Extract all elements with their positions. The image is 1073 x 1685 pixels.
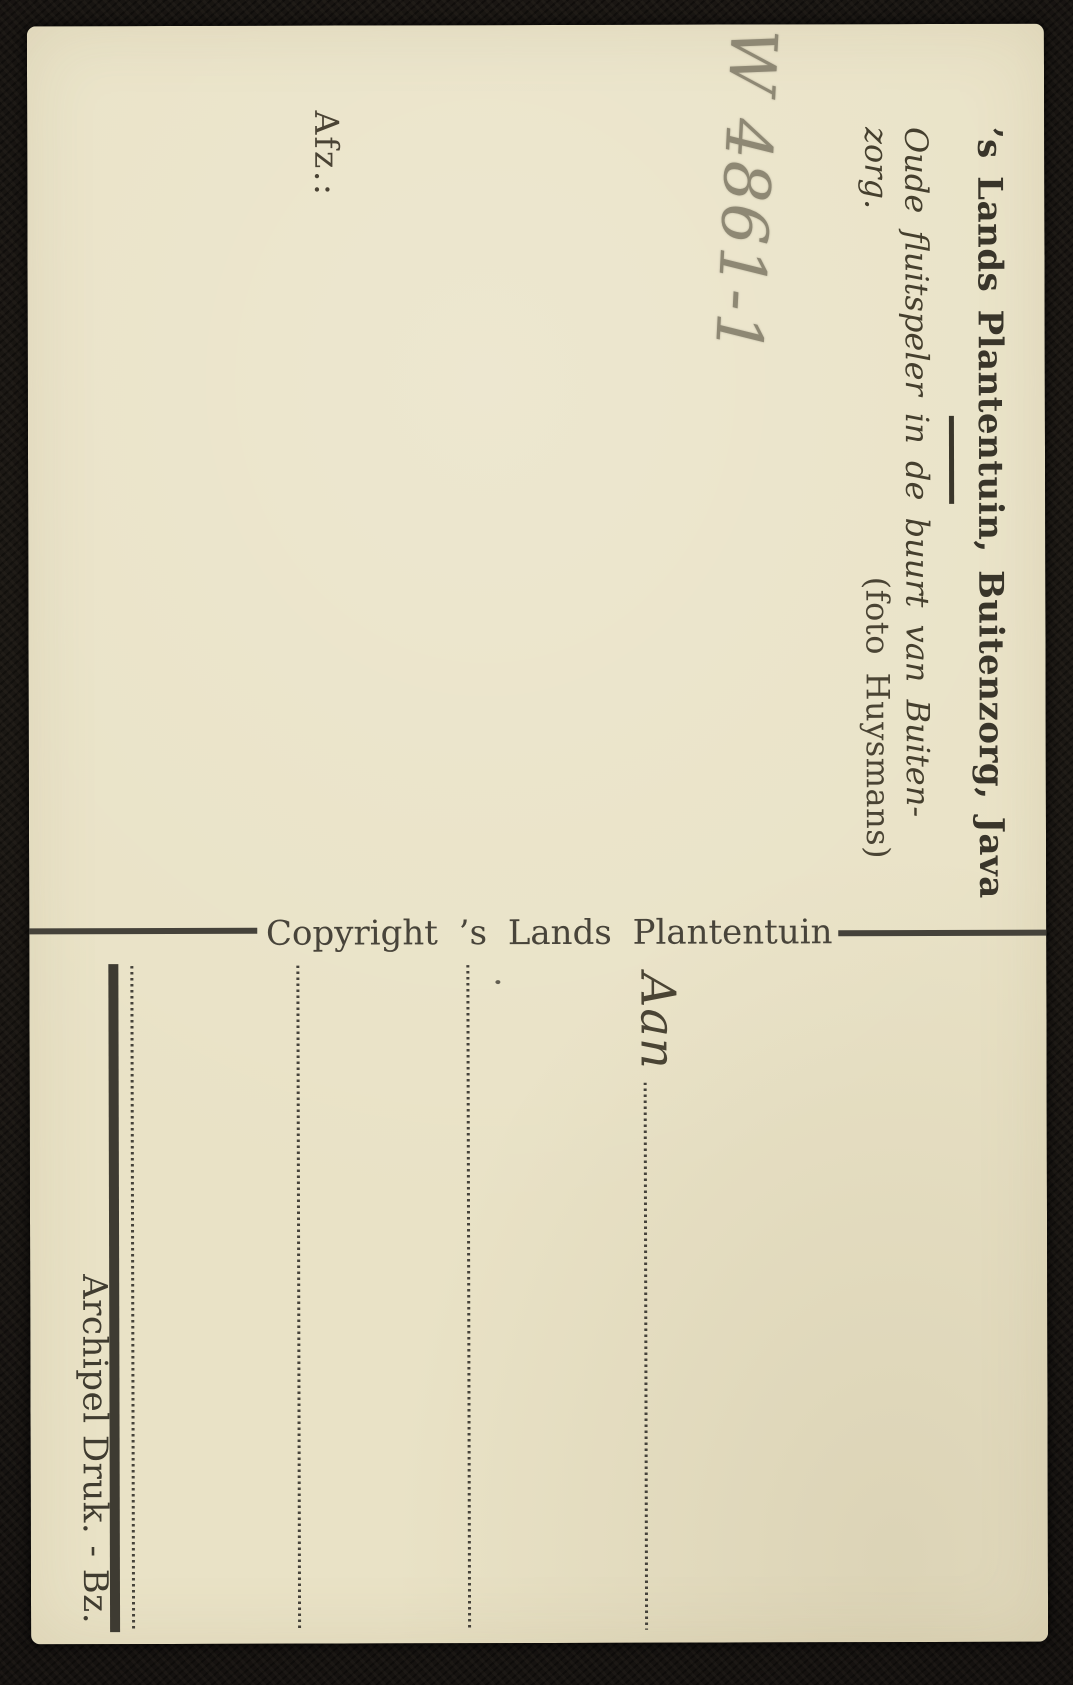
address-dotted-line-2 <box>296 966 301 1631</box>
postcard-title: ’s Lands Plantentuin, Buitenzorg, Java <box>969 127 1011 861</box>
title-underline-rule <box>949 416 954 504</box>
copyright-rule-left <box>29 928 257 935</box>
caption-photo-credit: (foto Huysmans) <box>857 577 898 859</box>
address-label: Aan <box>629 973 685 1070</box>
handwritten-number: W 4861-1 <box>700 27 790 358</box>
caption-line-2-start: zorg. <box>856 127 896 209</box>
caption-line-2: zorg. (foto Huysmans) <box>856 127 898 859</box>
ink-speck <box>495 980 500 984</box>
printer-imprint: Archipel Druk. - Bz. <box>74 1274 115 1624</box>
sender-label: Afz.: <box>307 110 346 197</box>
copyright-rule-right <box>838 930 1046 937</box>
scanner-background: { "postcard": { "handwritten_note": "W 4… <box>0 0 1073 1685</box>
address-dotted-line-1 <box>130 966 135 1631</box>
copyright-text: Copyright ’s Lands Plantentuin <box>254 912 844 954</box>
photo-caption: Oude fluitspeler in de buurt van Buiten-… <box>856 127 938 859</box>
address-dotted-line-3 <box>466 965 471 1630</box>
caption-line-1: Oude fluitspeler in de buurt van Buiten- <box>896 127 938 859</box>
address-dotted-line-aan <box>644 1083 648 1630</box>
postcard: W 4861-1 ’s Lands Plantentuin, Buitenzor… <box>27 24 1048 1645</box>
